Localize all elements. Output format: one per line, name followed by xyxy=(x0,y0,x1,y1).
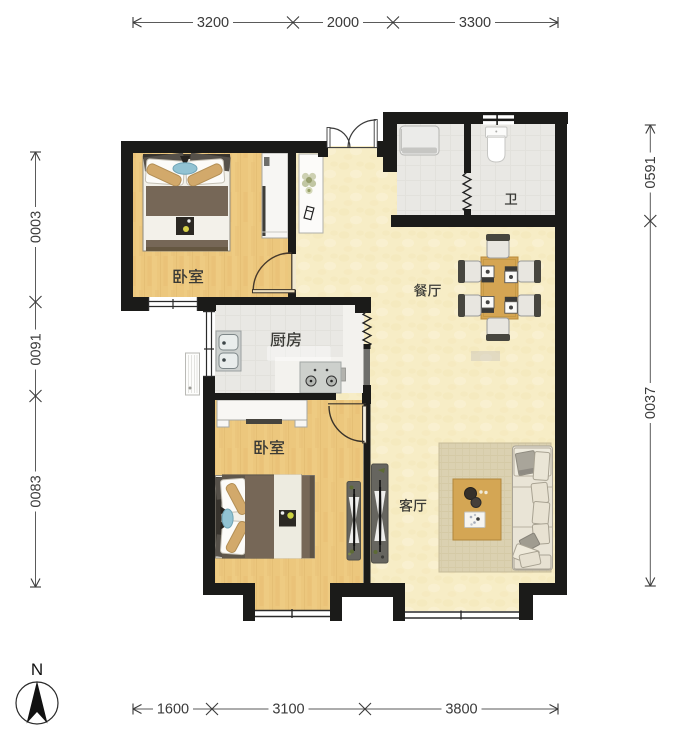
svg-text:3300: 3300 xyxy=(459,15,491,31)
svg-text:N: N xyxy=(31,660,43,679)
svg-text:0591: 0591 xyxy=(643,156,659,188)
svg-text:2000: 2000 xyxy=(327,15,359,31)
svg-text:3200: 3200 xyxy=(197,15,229,31)
svg-text:1600: 1600 xyxy=(157,702,189,718)
svg-text:3800: 3800 xyxy=(445,702,477,718)
svg-text:3100: 3100 xyxy=(272,702,304,718)
svg-text:0091: 0091 xyxy=(28,333,44,365)
svg-text:0003: 0003 xyxy=(28,211,44,243)
svg-text:0083: 0083 xyxy=(28,475,44,507)
svg-text:0037: 0037 xyxy=(643,387,659,419)
